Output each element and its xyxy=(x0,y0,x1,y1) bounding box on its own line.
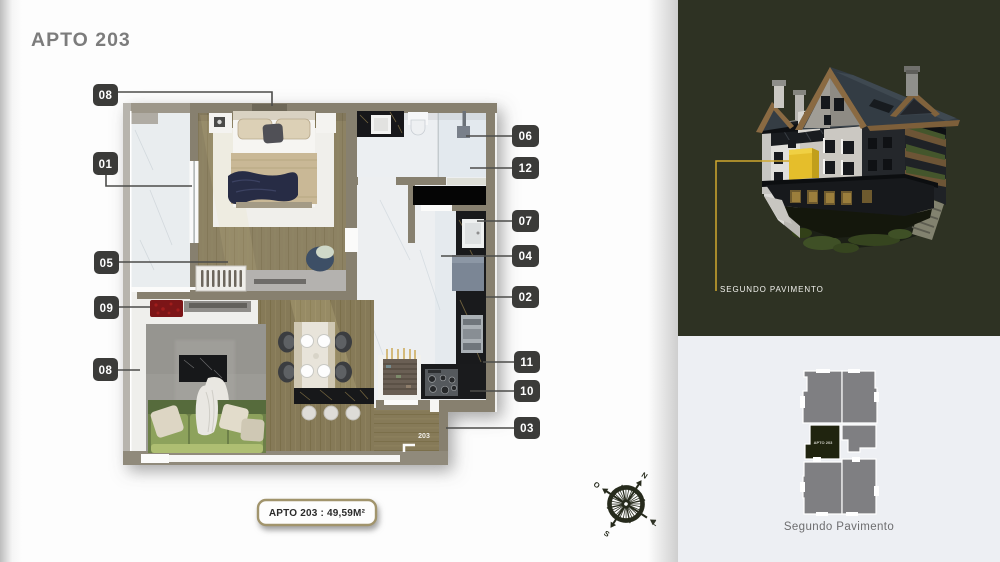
svg-text:11: 11 xyxy=(520,357,533,369)
svg-text:O: O xyxy=(592,480,602,491)
svg-text:05: 05 xyxy=(100,258,114,270)
svg-text:APTO 203: APTO 203 xyxy=(814,440,834,445)
svg-text:10: 10 xyxy=(520,386,534,398)
svg-text:APTO 203 : 49,59M²: APTO 203 : 49,59M² xyxy=(269,508,366,519)
svg-text:04: 04 xyxy=(519,251,533,263)
svg-text:203: 203 xyxy=(418,433,430,440)
svg-text:S: S xyxy=(602,529,611,539)
svg-text:01: 01 xyxy=(99,159,113,171)
svg-text:07: 07 xyxy=(519,216,533,228)
svg-text:08: 08 xyxy=(99,365,113,377)
svg-text:06: 06 xyxy=(519,131,533,143)
svg-text:08: 08 xyxy=(99,90,113,102)
svg-text:09: 09 xyxy=(100,303,114,315)
svg-text:03: 03 xyxy=(520,423,534,435)
svg-text:12: 12 xyxy=(519,163,533,175)
svg-text:02: 02 xyxy=(519,292,533,304)
